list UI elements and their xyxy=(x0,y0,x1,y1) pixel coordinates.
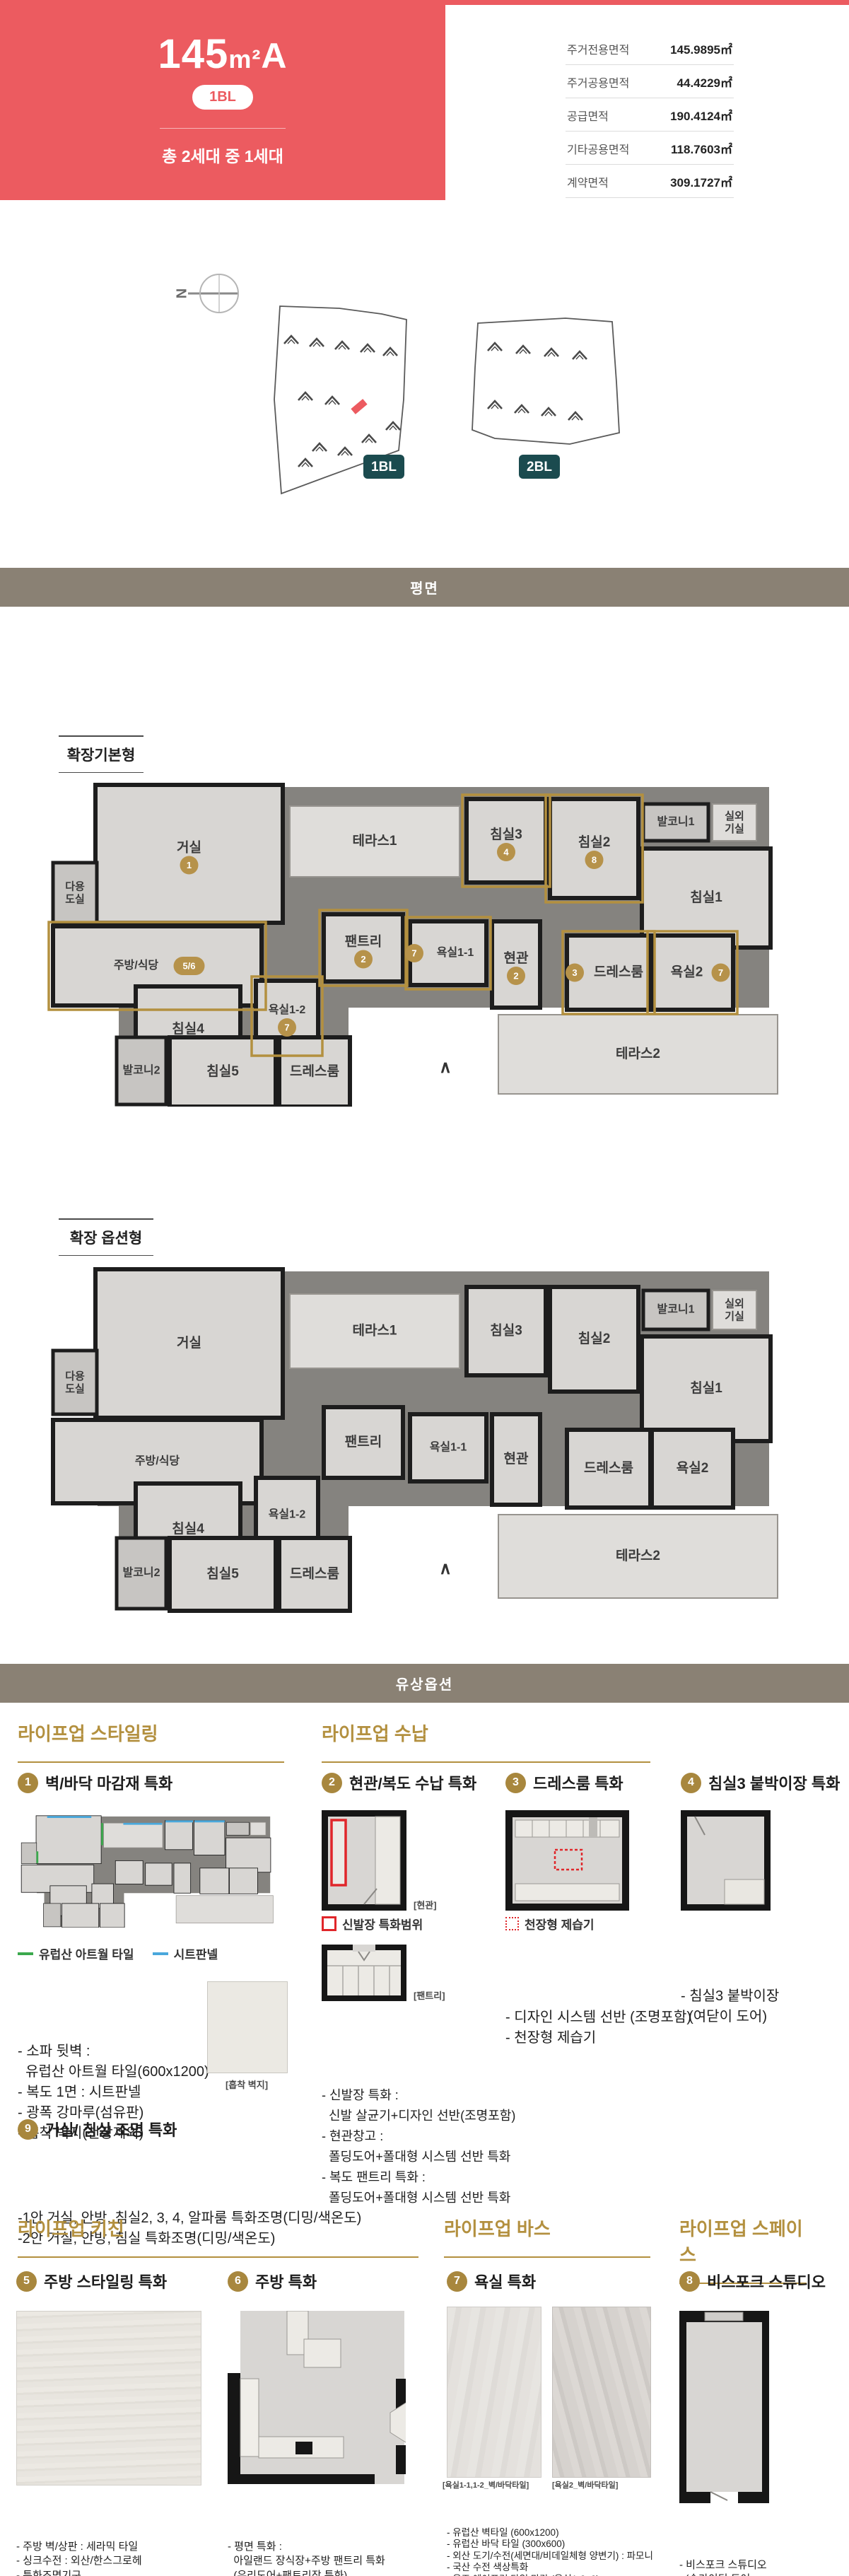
pantry-caption: [팬트리] xyxy=(414,1988,445,2002)
option-item-1: 1 벽/바닥 마감재 특화 xyxy=(18,1771,172,1794)
svg-text:욕실1-2: 욕실1-2 xyxy=(269,1508,306,1521)
styling-finish-plan-thumbnail xyxy=(18,1814,284,1928)
dehumidifier-legend: 천장형 제습기 xyxy=(505,1915,595,1933)
option-item-3: 3 드레스룸 특화 xyxy=(505,1771,623,1794)
svg-text:욕실1-1: 욕실1-1 xyxy=(430,1441,467,1454)
svg-text:다용도실: 다용도실 xyxy=(65,880,85,905)
floor-plan-extended-basic: 거실1테라스1다용도실침실34침실28발코니1실외기실침실1주방/식당5/6팬트… xyxy=(42,781,809,1107)
site-plan: N1BL2BL xyxy=(0,233,849,502)
option-item-7: 7 욕실 특화 xyxy=(447,2270,536,2292)
red-box-chip xyxy=(322,1916,336,1931)
entrance-caption: [현관] xyxy=(414,1898,437,1911)
heading-lifeup-kitchen: 라이프업 키친 xyxy=(18,2215,418,2258)
svg-text:7: 7 xyxy=(284,1022,289,1032)
legend-label: 시트판넬 xyxy=(174,1945,218,1962)
floor-plan-extended-option: 거실테라스1다용도실침실3침실2발코니1실외기실침실1주방/식당팬트리욕실1-1… xyxy=(42,1266,809,1648)
svg-text:7: 7 xyxy=(411,948,416,958)
svg-text:욕실2: 욕실2 xyxy=(677,1460,709,1476)
option-3-bullets: - 디자인 시스템 선반 (조명포함)- 천장형 제습기 xyxy=(505,1946,691,2048)
bullet-line: - 특화조명기구 xyxy=(16,2569,165,2576)
shoe-closet-legend: 신발장 특화범위 xyxy=(322,1915,423,1933)
svg-text:다용도실: 다용도실 xyxy=(65,1370,85,1395)
area-table-label: 주거공용면적 xyxy=(567,74,629,91)
option-1-badge: 1 xyxy=(18,1773,38,1793)
page: 145m²A 1BL 총 2세대 중 1세대 주거전용면적 145.9895㎡ … xyxy=(0,0,849,2576)
units-count-text: 총 2세대 중 1세대 xyxy=(162,143,283,167)
svg-text:침실4: 침실4 xyxy=(172,1521,204,1537)
option-9-title: 거실/ 침실 조명 특화 xyxy=(45,2118,177,2140)
area-table-value: 309.1727㎡ xyxy=(670,173,732,190)
svg-text:거실: 거실 xyxy=(177,840,201,856)
area-table-value: 145.9895㎡ xyxy=(670,40,732,57)
section-bar-paid-options: 유상옵션 xyxy=(0,1664,849,1703)
option-8-bullets: - 비스포크 스튜디오 (슬라이딩 도어 +벽/천장 마감재 특화 +장식장+레… xyxy=(679,2514,778,2576)
option-4-title: 침실3 붙박이장 특화 xyxy=(708,1771,840,1794)
svg-text:팬트리: 팬트리 xyxy=(345,934,382,950)
option-item-9: 9 거실/ 침실 조명 특화 xyxy=(18,2118,177,2140)
svg-text:욕실1-2: 욕실1-2 xyxy=(269,1003,306,1016)
svg-text:침실3: 침실3 xyxy=(490,827,522,842)
svg-text:테라스1: 테라스1 xyxy=(352,833,397,849)
svg-text:∧: ∧ xyxy=(439,1058,452,1077)
bullet-line: - 유럽산 벽타일 (600x1200) xyxy=(447,2527,653,2539)
area-table-value: 118.7603㎡ xyxy=(671,139,732,157)
bullet-line: - 욕조 에이프런 타일 마감 (욕실1-2, 2) xyxy=(447,2574,653,2576)
svg-text:침실1: 침실1 xyxy=(690,1380,722,1396)
bullet-line: - 현관창고 : xyxy=(322,2126,515,2147)
option-item-6: 6 주방 특화 xyxy=(228,2270,317,2292)
bullet-line: - 신발장 특화 : xyxy=(322,2085,515,2106)
bath-tile-caption-2: [욕실2_벽/바닥타일] xyxy=(552,2479,618,2490)
svg-text:침실4: 침실4 xyxy=(172,1021,204,1037)
unit-title: 145m²A xyxy=(158,34,288,75)
option-item-5: 5 주방 스타일링 특화 xyxy=(16,2270,167,2292)
bullet-line: - 주방 벽/상판 : 세라믹 타일 xyxy=(16,2540,165,2555)
kitchen-plan-thumbnail xyxy=(228,2311,417,2484)
dressroom-plan-thumbnail xyxy=(505,1810,629,1911)
option-1-title: 벽/바닥 마감재 특화 xyxy=(45,1771,172,1794)
area-table-value: 44.4229㎡ xyxy=(677,73,732,91)
area-table-row: 기타공용면적 118.7603㎡ xyxy=(566,132,734,165)
option-6-bullets: - 평면 특화 : 아일랜드 장식장+주방 팬트리 특화 (유리도어+팬트리장 … xyxy=(228,2496,385,2576)
header-divider xyxy=(160,128,286,129)
option-7-bullets: - 유럽산 벽타일 (600x1200)- 유럽산 바닥 타일 (300x600… xyxy=(447,2492,653,2576)
option-7-badge: 7 xyxy=(447,2271,467,2292)
svg-text:팬트리: 팬트리 xyxy=(345,1434,382,1450)
svg-text:1: 1 xyxy=(187,860,192,870)
section-bar-plan: 평면 xyxy=(0,568,849,607)
svg-text:침실1: 침실1 xyxy=(690,890,722,905)
ceramic-tile-image xyxy=(16,2311,201,2485)
svg-text:2BL: 2BL xyxy=(527,460,552,474)
option-6-title: 주방 특화 xyxy=(255,2270,317,2292)
unit-area-variant: A xyxy=(261,36,287,76)
bullet-line: - 복도 1면 : 시트판넬 xyxy=(18,2082,209,2103)
svg-text:주방/식당: 주방/식당 xyxy=(114,959,159,972)
red-dotted-chip xyxy=(505,1917,519,1930)
bullet-line: - 싱크수전 : 외산/한스그로헤 xyxy=(16,2554,165,2569)
heading-lifeup-styling: 라이프업 스타일링 xyxy=(18,1720,284,1763)
bullet-line: - 유럽산 바닥 타일 (300x600) xyxy=(447,2539,653,2551)
option-8-title: 비스포크 스튜디오 xyxy=(707,2270,826,2292)
svg-text:침실5: 침실5 xyxy=(206,1566,239,1582)
option-7-title: 욕실 특화 xyxy=(474,2270,536,2292)
bath-tile-image-2 xyxy=(552,2307,651,2478)
svg-text:2: 2 xyxy=(513,970,518,981)
option-item-4: 4 침실3 붙박이장 특화 xyxy=(681,1771,840,1794)
bullet-line: 아일랜드 장식장+주방 팬트리 특화 xyxy=(228,2554,385,2569)
bath-tile-caption-1: [욕실1-1,1-2_벽/바닥타일] xyxy=(443,2479,529,2490)
option-4-bullets: - 침실3 붙박이장 (여닫이 도어) xyxy=(681,1925,779,2027)
bullet-line: 신발 살균기+디자인 선반(조명포함) xyxy=(322,2106,515,2126)
svg-text:N: N xyxy=(174,289,189,298)
area-table: 주거전용면적 145.9895㎡ 주거공용면적 44.4229㎡ 공급면적 19… xyxy=(566,32,734,198)
svg-text:드레스룸: 드레스룸 xyxy=(584,1460,633,1476)
option-9-badge: 9 xyxy=(18,2119,38,2140)
bullet-line: - 국산 수전 색상특화 xyxy=(447,2562,653,2574)
svg-text:침실3: 침실3 xyxy=(490,1323,522,1339)
shoe-closet-legend-label: 신발장 특화범위 xyxy=(342,1915,423,1933)
area-summary-panel: 주거전용면적 145.9895㎡ 주거공용면적 44.4229㎡ 공급면적 19… xyxy=(445,0,849,200)
block-badge: 1BL xyxy=(192,85,253,110)
svg-text:테라스2: 테라스2 xyxy=(616,1046,660,1061)
option-2-title: 현관/복도 수납 특화 xyxy=(349,1771,476,1794)
svg-text:∧: ∧ xyxy=(439,1559,452,1578)
svg-text:드레스룸: 드레스룸 xyxy=(290,1063,339,1079)
area-table-row: 주거공용면적 44.4229㎡ xyxy=(566,65,734,98)
dehumidifier-legend-label: 천장형 제습기 xyxy=(525,1915,595,1933)
svg-text:5/6: 5/6 xyxy=(182,960,195,971)
option-item-8: 8 비스포크 스튜디오 xyxy=(679,2270,826,2292)
svg-text:현관: 현관 xyxy=(504,1451,529,1467)
option-3-title: 드레스룸 특화 xyxy=(533,1771,623,1794)
svg-text:침실5: 침실5 xyxy=(206,1063,239,1079)
unit-area-unit: m² xyxy=(228,45,261,74)
svg-text:1BL: 1BL xyxy=(371,460,397,474)
option-8-badge: 8 xyxy=(679,2271,700,2292)
svg-text:드레스룸: 드레스룸 xyxy=(290,1566,339,1582)
svg-text:드레스룸: 드레스룸 xyxy=(594,964,643,980)
area-table-label: 기타공용면적 xyxy=(567,140,629,157)
adsorption-wallpaper-swatch xyxy=(207,1981,288,2073)
svg-text:거실: 거실 xyxy=(177,1335,201,1351)
option-6-badge: 6 xyxy=(228,2271,248,2292)
svg-text:2: 2 xyxy=(361,954,365,964)
svg-text:발코니1: 발코니1 xyxy=(657,1303,694,1316)
area-table-row: 계약면적 309.1727㎡ xyxy=(566,165,734,198)
area-table-label: 주거전용면적 xyxy=(567,40,629,57)
option-5-title: 주방 스타일링 특화 xyxy=(44,2270,167,2292)
area-table-row: 주거전용면적 145.9895㎡ xyxy=(566,32,734,65)
legend-entry: 시트판넬 xyxy=(153,1945,218,1962)
svg-text:주방/식당: 주방/식당 xyxy=(135,1455,180,1467)
bullet-line: (유리도어+팬트리장 특화) xyxy=(228,2569,385,2576)
plan2-label: 확장 옵션형 xyxy=(59,1218,153,1256)
option-item-2: 2 현관/복도 수납 특화 xyxy=(322,1771,476,1794)
legend-color-chip xyxy=(153,1952,168,1955)
option-3-badge: 3 xyxy=(505,1773,526,1793)
bullet-line: - 침실3 붙박이장 xyxy=(681,1986,779,2007)
svg-text:발코니1: 발코니1 xyxy=(657,815,694,828)
svg-text:욕실1-1: 욕실1-1 xyxy=(437,946,474,959)
unit-header: 145m²A 1BL 총 2세대 중 1세대 xyxy=(0,0,445,200)
heading-lifeup-storage: 라이프업 수납 xyxy=(322,1720,650,1763)
area-table-label: 계약면적 xyxy=(567,173,609,190)
option-5-badge: 5 xyxy=(16,2271,37,2292)
swatch-caption: [흡착 벽지] xyxy=(207,2077,286,2091)
svg-text:테라스2: 테라스2 xyxy=(616,1548,660,1563)
bullet-line: - 평면 특화 : xyxy=(228,2540,385,2555)
unit-area-number: 145 xyxy=(158,31,229,77)
svg-text:8: 8 xyxy=(592,854,597,865)
legend-entry: 유럽산 아트월 타일 xyxy=(18,1945,134,1962)
svg-text:테라스1: 테라스1 xyxy=(352,1323,397,1339)
bedroom3-closet-thumbnail xyxy=(681,1810,771,1911)
bullet-line: (여닫이 도어) xyxy=(681,2007,779,2027)
svg-text:침실2: 침실2 xyxy=(578,834,611,850)
bullet-line: - 천장형 제습기 xyxy=(505,2028,691,2048)
svg-text:침실2: 침실2 xyxy=(578,1331,611,1346)
bullet-line: 유럽산 아트월 타일(600x1200) xyxy=(18,2062,209,2082)
area-table-value: 190.4124㎡ xyxy=(670,106,732,124)
area-table-label: 공급면적 xyxy=(567,107,609,124)
legend-color-chip xyxy=(18,1952,33,1955)
bullet-line: (슬라이딩 도어 xyxy=(679,2572,778,2576)
svg-text:발코니2: 발코니2 xyxy=(122,1064,160,1077)
bath-tile-image-1 xyxy=(447,2307,541,2478)
finish-legend: 유럽산 아트월 타일 시트판넬 xyxy=(18,1945,218,1962)
svg-text:3: 3 xyxy=(572,967,577,978)
svg-text:7: 7 xyxy=(718,967,723,978)
plan1-label: 확장기본형 xyxy=(59,735,144,773)
bullet-line: - 디자인 시스템 선반 (조명포함) xyxy=(505,2007,691,2028)
bullet-line: - 비스포크 스튜디오 xyxy=(679,2558,778,2573)
svg-text:현관: 현관 xyxy=(504,950,529,966)
bullet-line: - 소파 뒷벽 : xyxy=(18,2041,209,2062)
entrance-plan-thumbnail xyxy=(322,1810,406,1911)
option-2-badge: 2 xyxy=(322,1773,342,1793)
svg-text:발코니2: 발코니2 xyxy=(122,1566,160,1579)
option-5-bullets: - 주방 벽/상판 : 세라믹 타일- 싱크수전 : 외산/한스그로헤- 특화조… xyxy=(16,2496,165,2576)
pantry-plan-thumbnail xyxy=(322,1945,406,2001)
legend-label: 유럽산 아트월 타일 xyxy=(39,1945,134,1962)
svg-text:4: 4 xyxy=(503,846,509,857)
area-table-row: 공급면적 190.4124㎡ xyxy=(566,98,734,132)
option-4-badge: 4 xyxy=(681,1773,701,1793)
bullet-line: - 외산 도기/수전(세면대/비데일체형 양변기) : 파모니 xyxy=(447,2551,653,2563)
heading-lifeup-bath: 라이프업 바스 xyxy=(444,2215,650,2258)
svg-text:욕실2: 욕실2 xyxy=(671,964,703,980)
bespoke-studio-thumbnail xyxy=(679,2311,769,2503)
